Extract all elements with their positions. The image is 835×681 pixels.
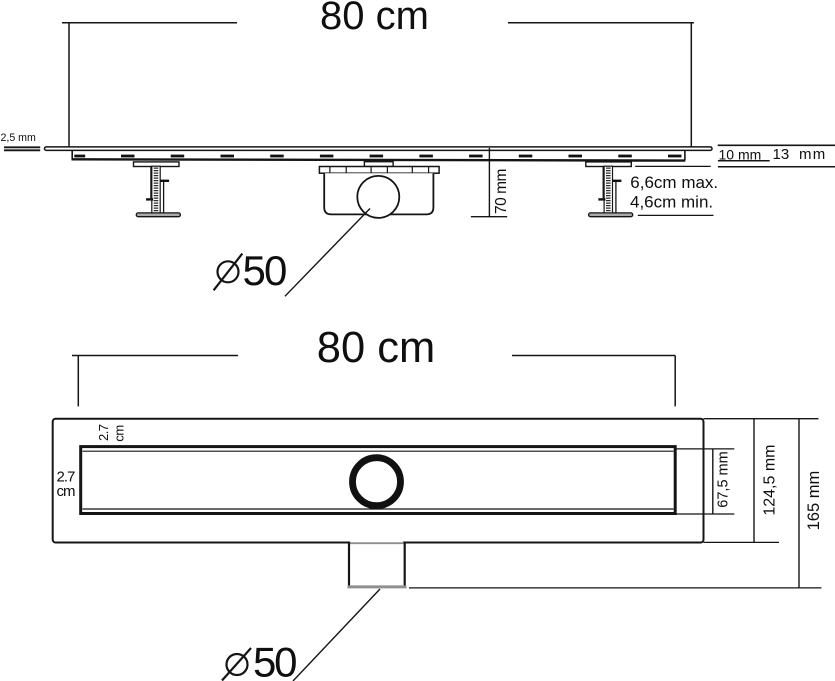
svg-text:4,6cm min.: 4,6cm min. [630, 192, 713, 211]
svg-text:mm: mm [799, 146, 826, 163]
svg-text:80 cm: 80 cm [317, 324, 435, 372]
svg-text:67,5 mm: 67,5 mm [716, 451, 732, 507]
svg-text:6,6cm max.: 6,6cm max. [630, 173, 718, 192]
svg-text:165 mm: 165 mm [805, 471, 823, 531]
svg-text:50: 50 [243, 247, 287, 294]
svg-text:2.7: 2.7 [96, 424, 111, 441]
svg-text:13: 13 [773, 146, 790, 163]
svg-text:cm: cm [57, 483, 76, 500]
svg-text:70 mm: 70 mm [493, 169, 510, 214]
svg-text:cm: cm [112, 425, 127, 441]
svg-text:80 cm: 80 cm [320, 0, 429, 38]
svg-text:124,5 mm: 124,5 mm [761, 445, 778, 516]
svg-text:2,5 mm: 2,5 mm [1, 132, 36, 144]
svg-text:50: 50 [253, 638, 296, 681]
